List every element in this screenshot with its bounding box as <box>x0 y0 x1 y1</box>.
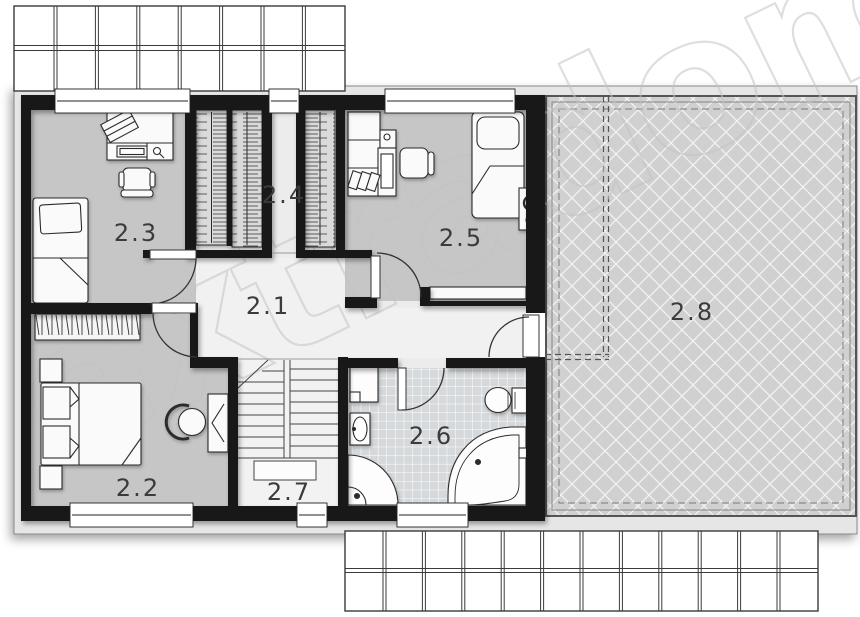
outer-wall-right <box>526 357 545 521</box>
outer-wall-right <box>526 95 545 313</box>
window <box>397 503 468 527</box>
sink <box>350 413 370 445</box>
window <box>297 503 327 527</box>
toilet-tank <box>512 388 527 413</box>
window <box>385 89 515 113</box>
wardrobe <box>35 314 140 340</box>
pillow <box>43 387 70 419</box>
double-bed <box>41 383 141 465</box>
roof-grid-bottom <box>345 531 818 611</box>
shelf <box>430 287 526 299</box>
pillow <box>39 203 81 234</box>
floor-plan: extradom <box>0 0 860 617</box>
window <box>269 89 299 113</box>
nightstand <box>40 466 62 489</box>
washing-machine <box>350 367 378 402</box>
pillow <box>43 426 70 458</box>
pillow <box>477 117 519 149</box>
single-bed <box>472 112 524 218</box>
stair-landing <box>254 461 316 480</box>
nightstand <box>40 359 62 382</box>
desk-chair <box>400 148 434 178</box>
window <box>55 89 190 113</box>
floor-plan-drawing: extradom <box>0 0 860 617</box>
desk-chair <box>119 168 155 197</box>
single-bed <box>33 198 88 303</box>
toilet <box>485 388 527 414</box>
dressing-table <box>208 394 228 452</box>
roof-grid-top <box>14 6 345 91</box>
window <box>70 503 193 527</box>
desk <box>378 148 396 196</box>
